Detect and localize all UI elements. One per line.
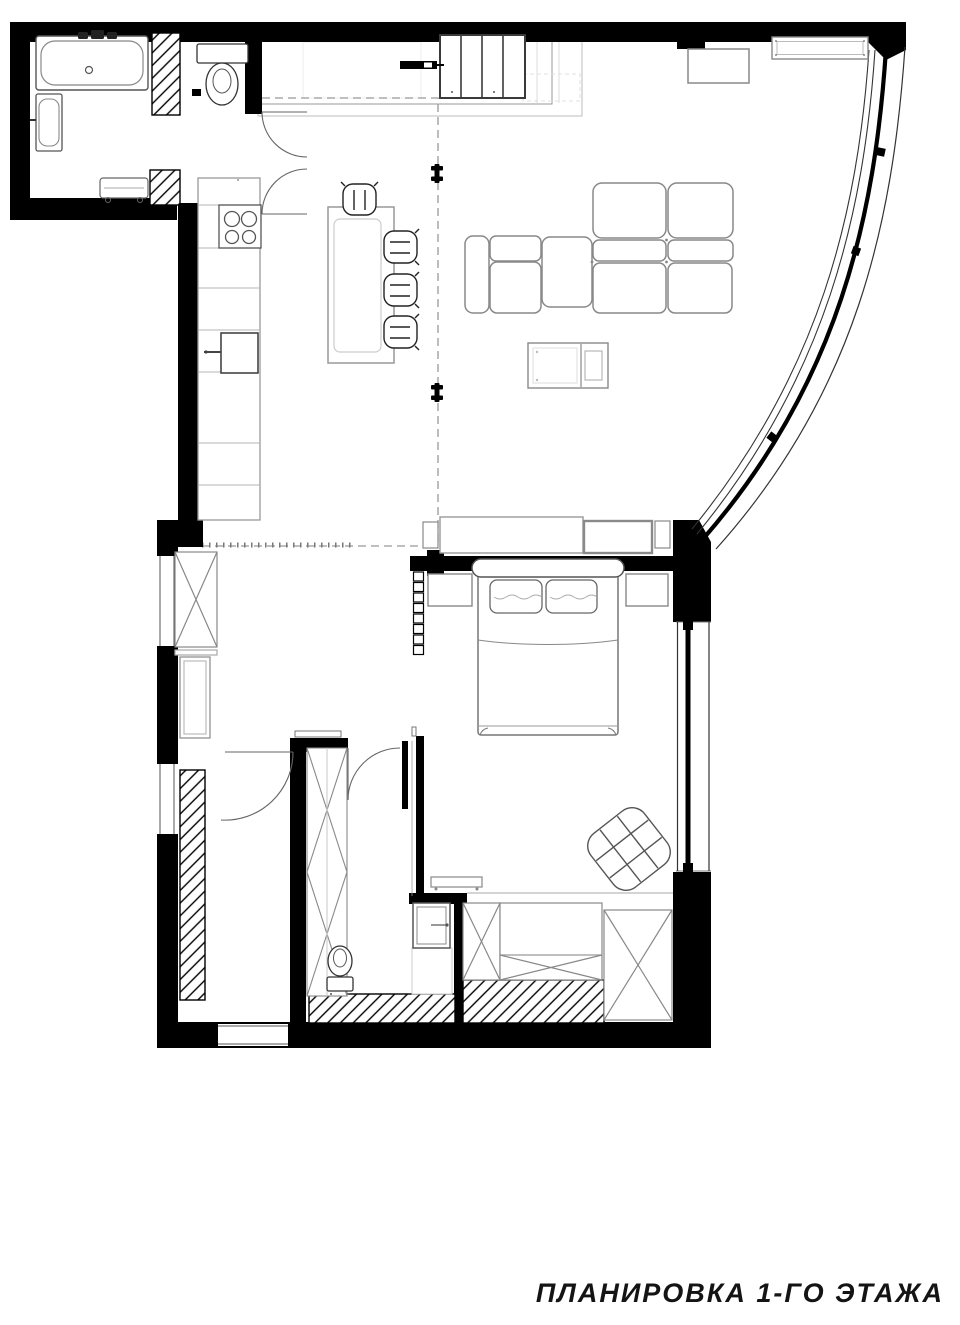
coffee-table-icon [528,343,608,388]
pillow-icon [546,580,597,613]
console-icon [688,49,749,83]
window-icon [155,764,179,834]
entry-wardrobe-icon [440,35,525,98]
track-anchor-icon [431,383,443,402]
bar-chair-icon [384,314,419,350]
x-wardrobe-icon [175,552,217,655]
armchair-icon [581,801,676,896]
bath-sink-icon [30,94,62,151]
mezzanine-outline [258,36,582,116]
tv-sideboard-icon [423,517,670,553]
toilet-icon [192,44,248,105]
lintel [295,727,416,737]
sliding-door-handle-icon [400,61,444,69]
wc-toilet-icon [327,946,353,995]
bar-chair-icon [384,272,419,308]
bathtub-icon [36,36,148,90]
bar-chair-icon [384,229,419,265]
cooktop-icon [219,205,261,248]
tall-cabinet-icon [180,657,210,738]
sofa-icon [465,183,733,313]
pillow-icon [490,580,542,613]
track-anchor-icon [431,164,443,183]
ladder-icon [414,572,424,655]
window-icon [676,621,711,872]
bar-chair-icon [341,182,378,215]
dash-end-dot [237,179,239,181]
wall-shelf-icon [772,37,868,59]
wc-sink-icon [412,903,452,994]
double-bed-icon [472,559,624,735]
floor-plan-page: ПЛАНИРОВКА 1-ГО ЭТАЖА [0,0,960,1325]
window-icon [218,1024,288,1046]
plan-title: ПЛАНИРОВКА 1-ГО ЭТАЖА [536,1278,944,1309]
bench-icon [431,877,482,891]
floor-plan-svg [0,0,960,1325]
door-swing-icon [262,112,307,214]
